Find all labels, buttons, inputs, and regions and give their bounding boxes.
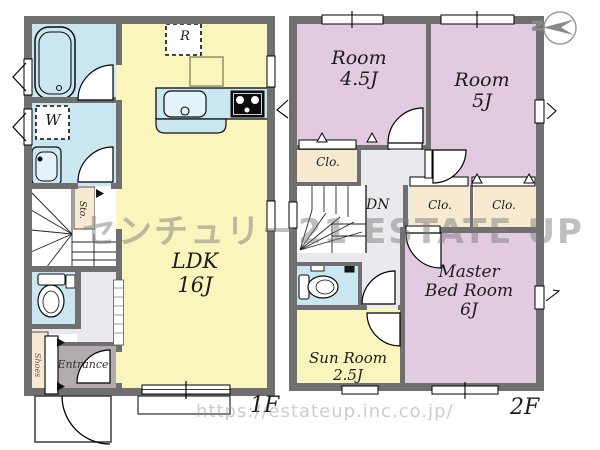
sunroom-window [342, 386, 378, 394]
floor-1f-rooms [31, 23, 268, 392]
window-swing-icon [547, 103, 556, 119]
refrigerator-box [166, 24, 201, 55]
stove-burner-small [244, 107, 250, 113]
room5-door-opening [425, 150, 432, 178]
hallway-1f [77, 271, 116, 347]
toilet-shelf-1f [66, 275, 75, 288]
kitchen-counter-return [156, 119, 226, 133]
ldk-window-right-mid [267, 201, 275, 231]
closet-1 [296, 145, 360, 185]
stove-burner-right [251, 96, 260, 105]
stove-burner-left [236, 96, 245, 105]
hall-window [289, 202, 297, 228]
stairs-2f-area [296, 185, 366, 253]
floor-plan-drawing: N [0, 0, 600, 450]
window-swing-icon [546, 290, 559, 301]
toilet-control [345, 266, 354, 272]
vanity-basin [36, 152, 57, 181]
window-swing-icon [277, 100, 288, 118]
room5-side-window [535, 100, 544, 123]
storage-strip [74, 187, 95, 229]
vanity-faucet [38, 157, 42, 161]
ldk-window-right-top [267, 56, 275, 87]
closet-2 [410, 185, 472, 230]
entrance-porch [35, 396, 111, 444]
floor-plan: N LDK 16J W R Sto. Shoes Entrance 1F Roo… [0, 0, 600, 450]
closet-3 [474, 185, 537, 230]
floor-2f-rooms [296, 23, 537, 387]
ldk-room [115, 23, 268, 392]
kitchen-sink [164, 91, 206, 117]
washer-box [36, 106, 69, 139]
toilet-tank-1f [38, 274, 65, 285]
north-arrow-icon [543, 20, 574, 36]
closet-1-door [299, 140, 356, 149]
toilet-bowl-2f [308, 276, 338, 298]
toilet-bowl-1f [38, 285, 64, 317]
compass-north-label: N [529, 19, 547, 32]
master-side-window [535, 286, 544, 309]
sliding-door-1f [114, 280, 124, 345]
terrace [138, 396, 230, 414]
